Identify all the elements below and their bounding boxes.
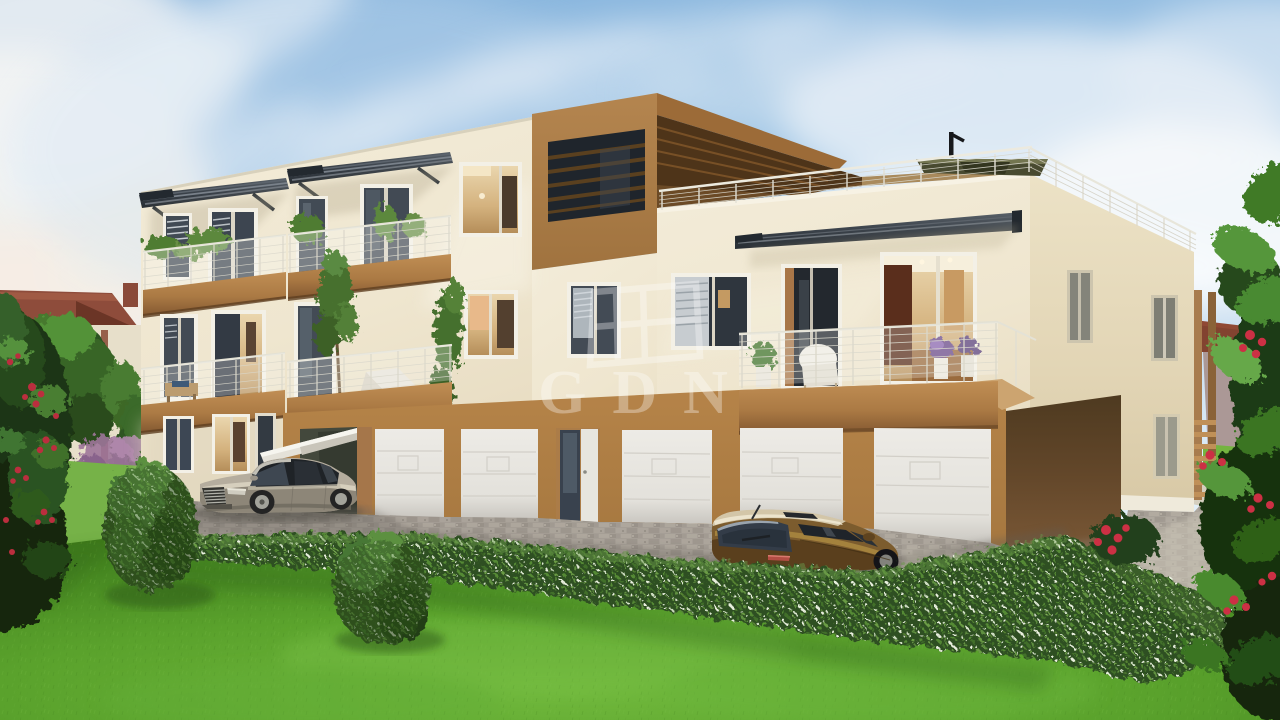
svg-text:GDN: GDN — [538, 359, 754, 427]
